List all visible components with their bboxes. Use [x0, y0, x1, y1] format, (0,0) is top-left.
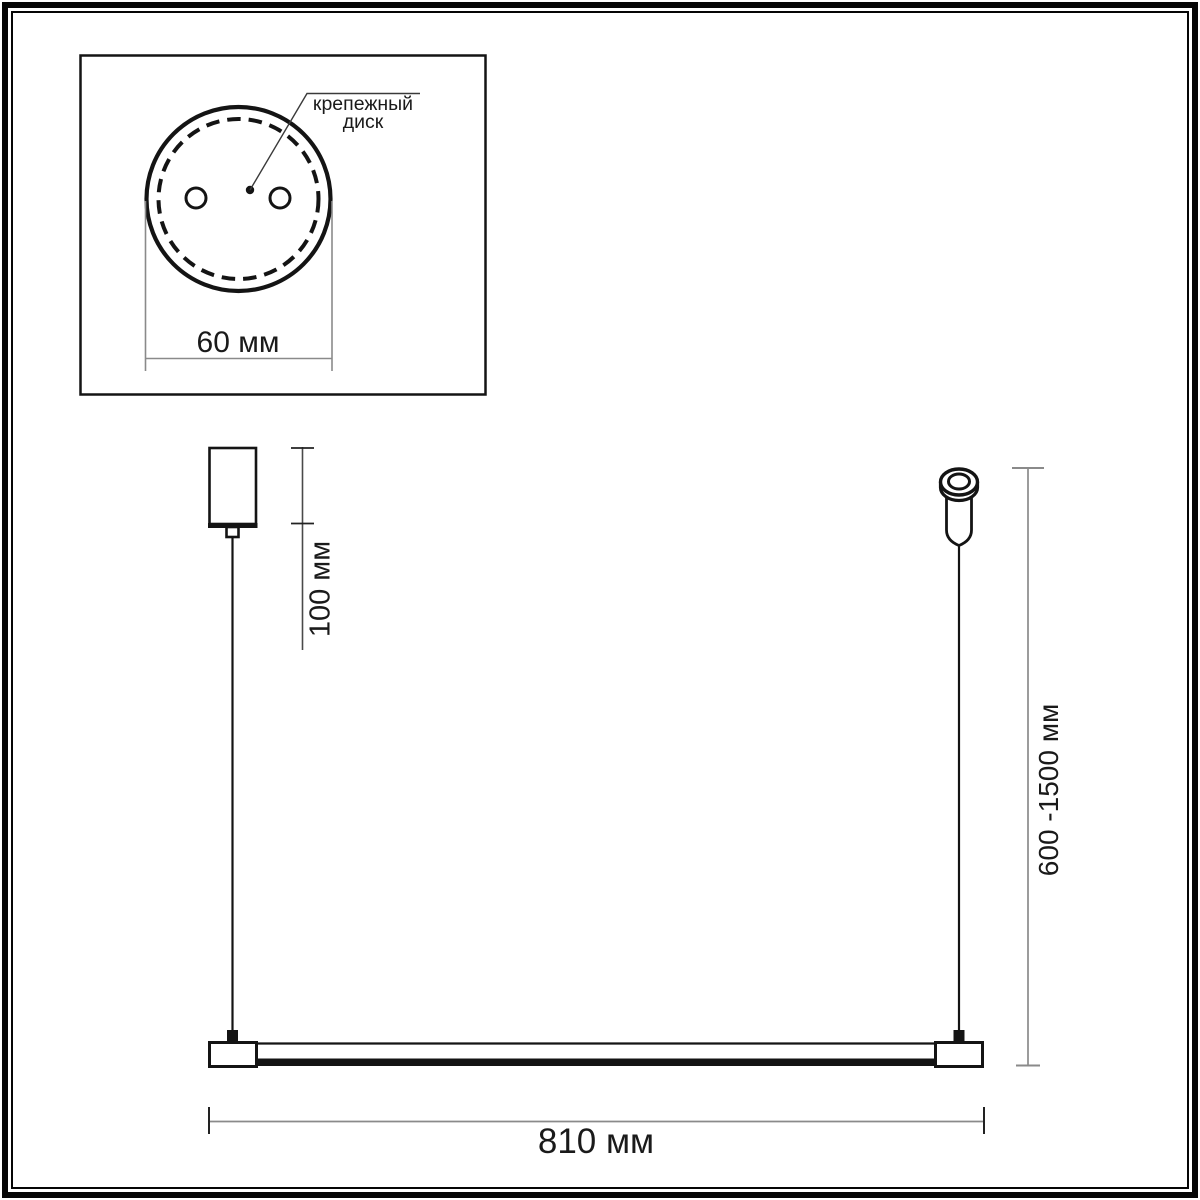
- callout-text-line2: диск: [313, 114, 413, 132]
- pendant-light-drawing: [0, 0, 1200, 1200]
- mounting-disk-inset: [81, 56, 486, 395]
- left-cable-gripper-bottom: [227, 1030, 238, 1042]
- canopy-drop-label: 100 мм: [305, 541, 338, 637]
- screw-hole-right: [270, 188, 290, 208]
- right-suspension-assembly: [941, 469, 978, 1042]
- mounting-disk-callout: крепежный диск: [313, 96, 413, 131]
- disk-diameter-label: 60 мм: [197, 326, 280, 360]
- screw-hole-left: [186, 188, 206, 208]
- suspension-range-label: 600 -1500 мм: [1033, 704, 1065, 876]
- technical-drawing-page: крепежный диск 60 мм 100 мм 600 -1500 мм…: [0, 0, 1200, 1200]
- light-bar-endcap-right: [936, 1043, 983, 1067]
- left-suspension-assembly: [208, 448, 258, 1042]
- light-bar-endcap-left: [210, 1043, 257, 1067]
- right-cable-gripper-bottom: [954, 1030, 965, 1042]
- left-cable-gripper-top: [227, 527, 239, 537]
- mounting-disk-outline: [147, 107, 331, 291]
- fixture-length-label: 810 мм: [538, 1122, 654, 1162]
- right-canopy-flange-hole: [949, 474, 970, 489]
- light-bar-diffuser: [256, 1059, 936, 1067]
- left-canopy: [210, 448, 257, 524]
- light-bar: [210, 1043, 983, 1067]
